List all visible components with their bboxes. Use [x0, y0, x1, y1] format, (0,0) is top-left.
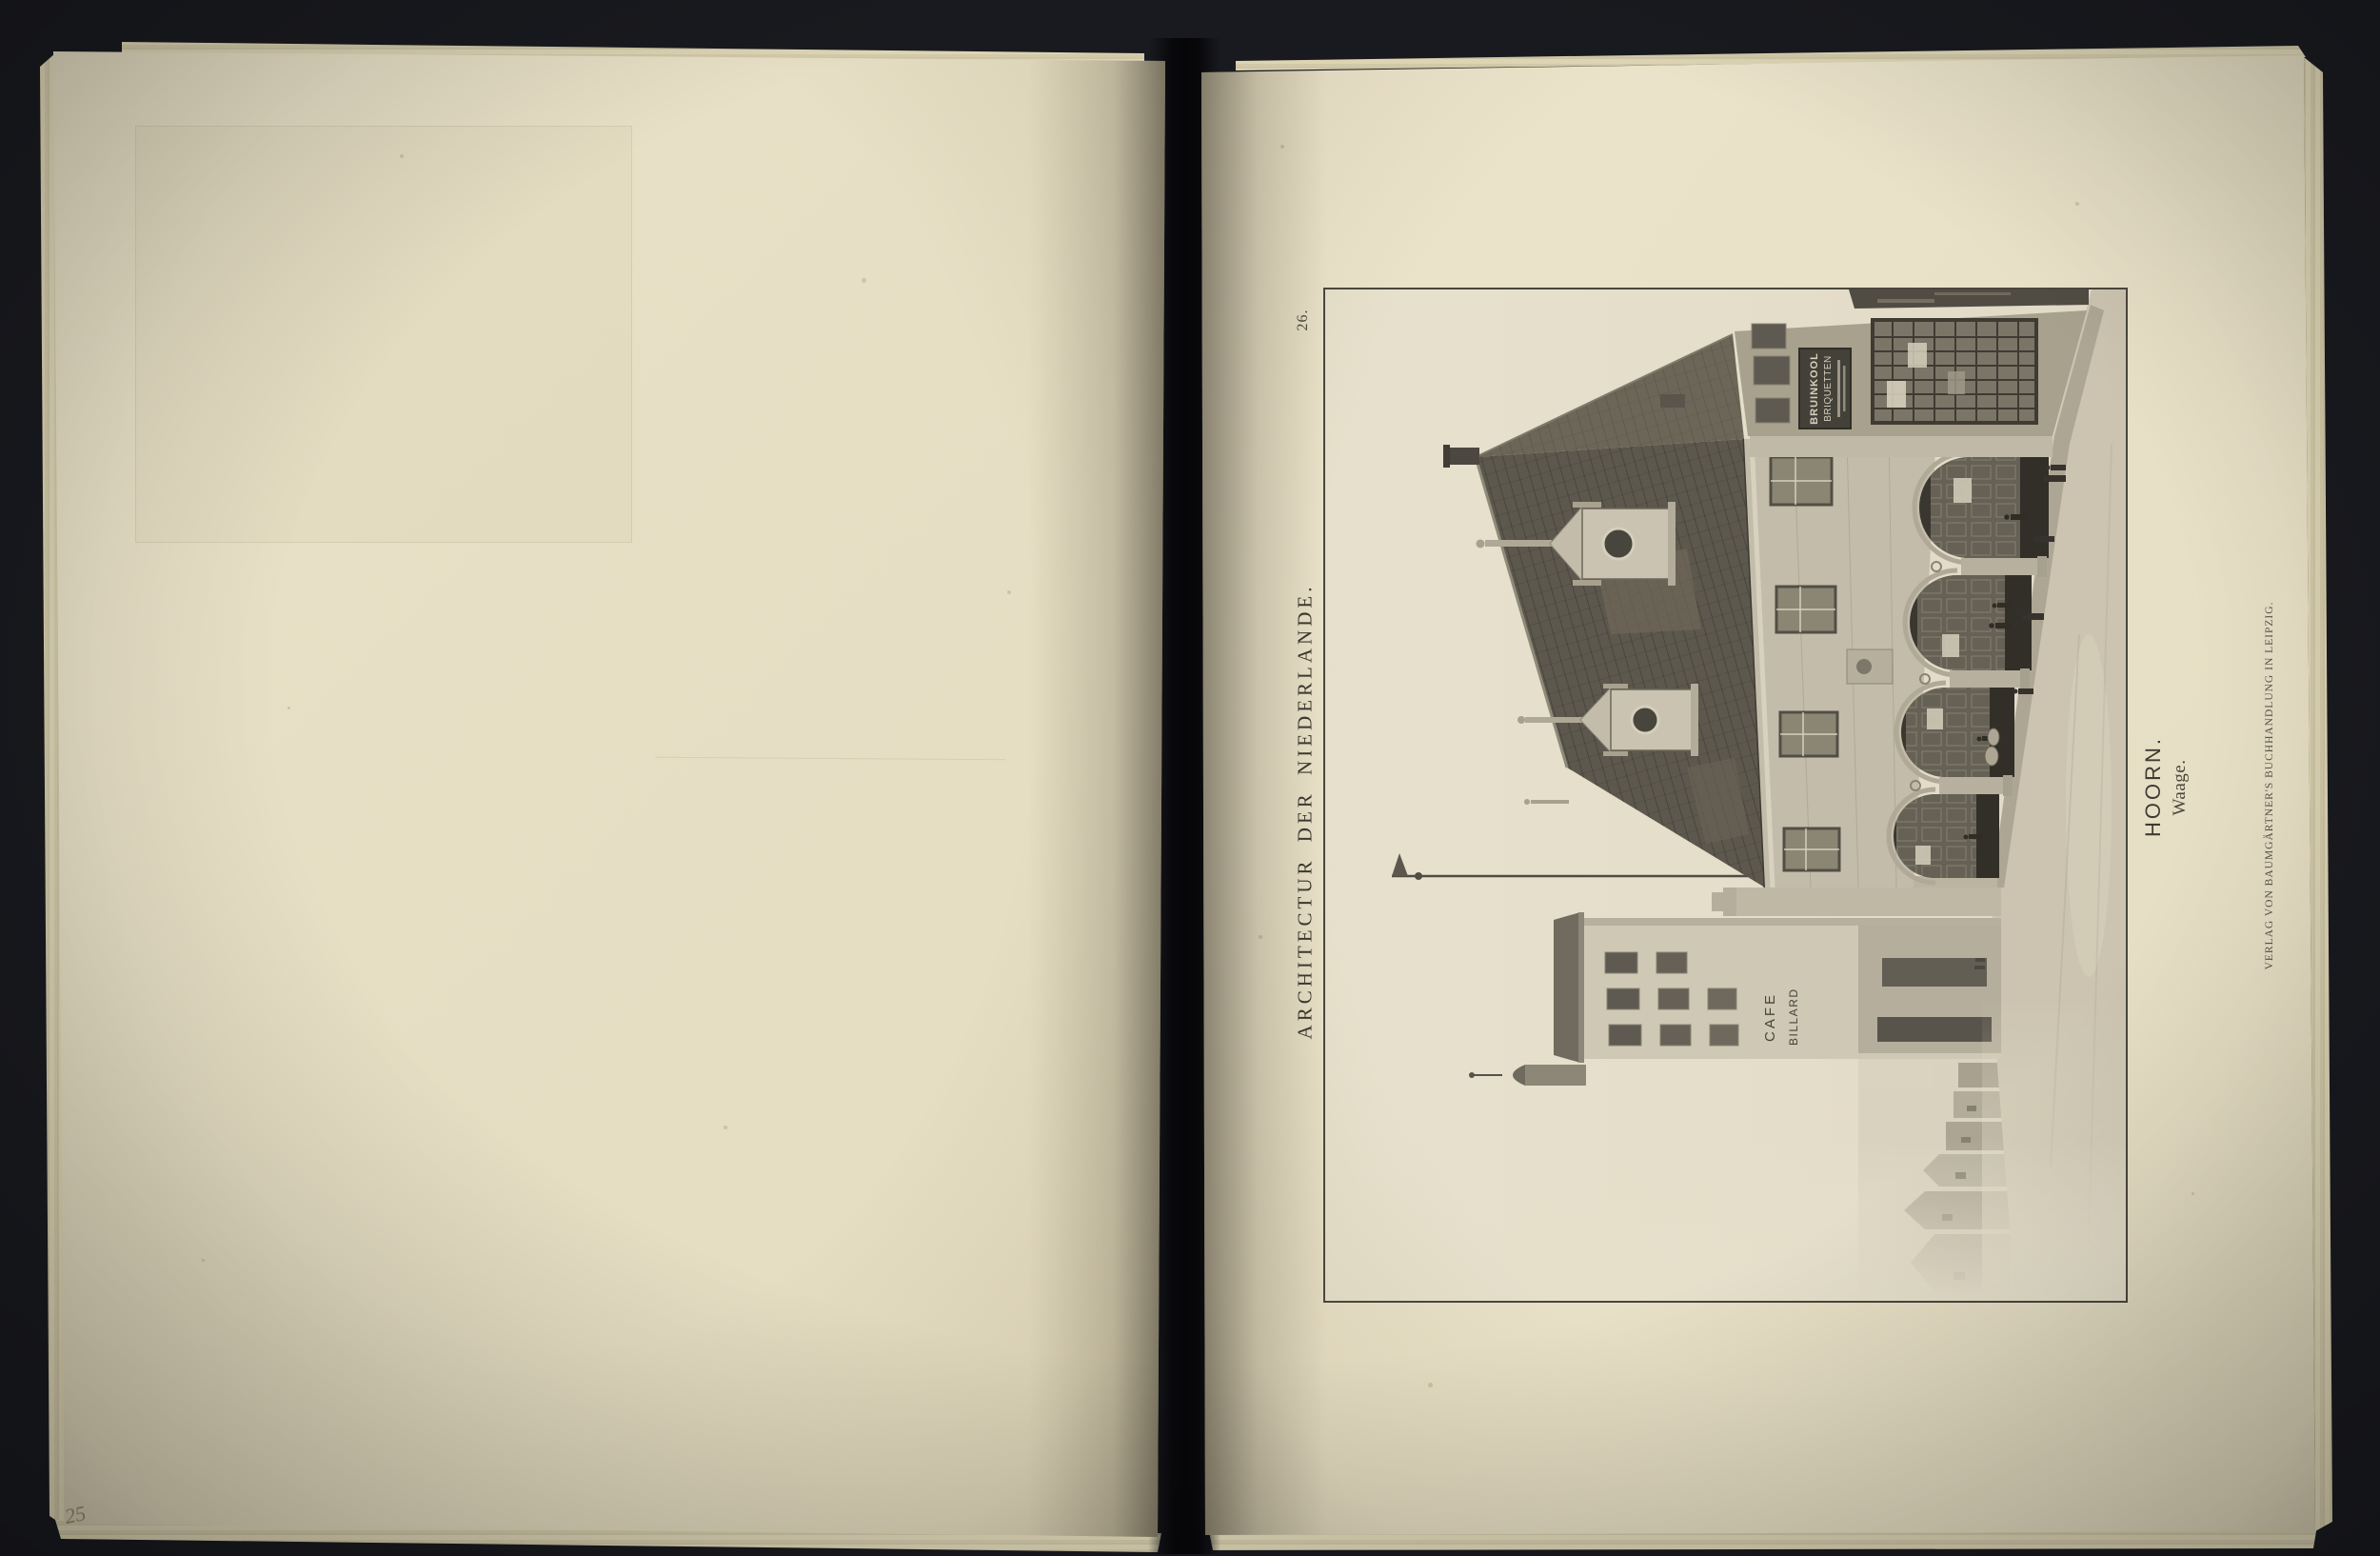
- foxing-speck: [202, 1259, 205, 1262]
- foxing-speck: [400, 154, 404, 158]
- foxing-speck: [1007, 590, 1011, 594]
- caption-subtitle: Waage.: [2170, 760, 2191, 816]
- publisher-imprint: VERLAG VON BAUMGÄRTNER'S BUCHHANDLUNG IN…: [2264, 602, 2275, 970]
- caption-title: HOORN.: [2141, 736, 2166, 837]
- faint-crease: [655, 757, 1005, 761]
- foxing-speck: [1428, 1383, 1433, 1387]
- series-title: ARCHITECTUR DER NIEDERLANDE.: [1294, 584, 1318, 1040]
- foxing-speck: [1280, 145, 1284, 149]
- foxing-speck: [2075, 202, 2079, 206]
- plate-number: 26.: [1295, 309, 1312, 331]
- foxing-speck: [862, 278, 866, 283]
- book-scan: 25: [0, 0, 2380, 1556]
- foxing-speck: [1259, 935, 1262, 939]
- plate-show-through: [135, 126, 632, 543]
- foxing-speck: [288, 707, 290, 709]
- foxing-speck: [724, 1126, 727, 1129]
- plate-border-frame: [1323, 288, 2128, 1303]
- foxing-speck: [2192, 1192, 2194, 1195]
- gutter-shadow: [1028, 51, 1165, 1537]
